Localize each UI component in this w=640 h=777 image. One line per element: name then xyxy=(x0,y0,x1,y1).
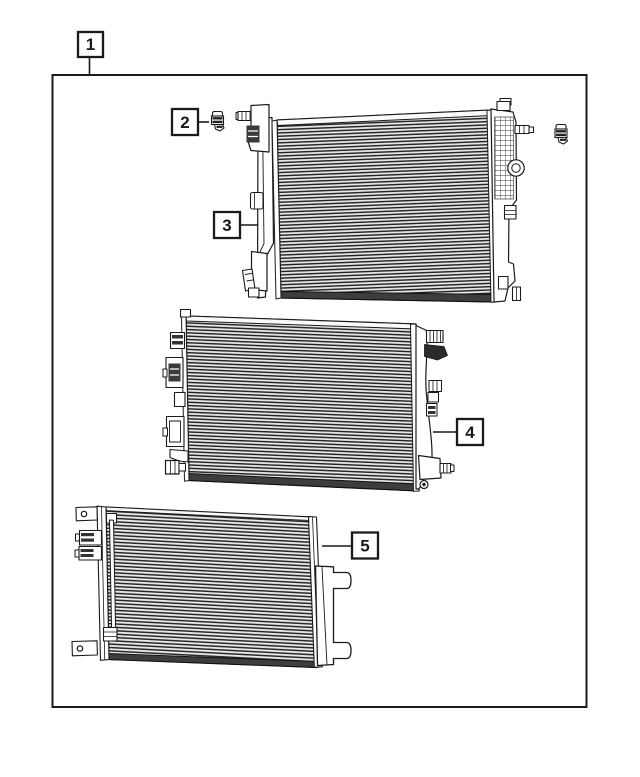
callout-1: 1 xyxy=(78,32,103,75)
callout-4-number: 4 xyxy=(465,423,475,442)
callout-4: 4 xyxy=(433,419,483,445)
radiator-upper-bottomleft-bracket xyxy=(243,252,268,298)
callout-3: 3 xyxy=(214,212,259,238)
radiator-lower-top-cap xyxy=(181,310,191,318)
retainer-clip-left xyxy=(212,112,225,132)
radiator-upper-topleft-bracket xyxy=(236,105,269,153)
callout-5-number: 5 xyxy=(360,536,369,555)
condenser-core xyxy=(106,507,317,668)
condenser-side-bracket xyxy=(316,566,352,666)
radiator-lower-right-tank xyxy=(416,326,454,490)
radiator-upper-core xyxy=(277,110,495,302)
callout-2: 2 xyxy=(172,109,209,135)
radiator-lower-drawing xyxy=(163,310,454,492)
radiator-upper-left-tab xyxy=(251,193,264,210)
diagram-canvas: 1 2 xyxy=(0,0,640,777)
radiator-lower-core xyxy=(186,316,419,491)
radiator-upper-right-tank xyxy=(491,99,534,303)
parts-diagram: 1 2 xyxy=(0,0,640,777)
callout-2-number: 2 xyxy=(180,113,189,132)
condenser-drawing xyxy=(72,506,351,667)
callout-1-number: 1 xyxy=(86,35,95,54)
callout-5: 5 xyxy=(322,533,378,559)
radiator-upper-drawing xyxy=(236,99,534,303)
callout-3-number: 3 xyxy=(222,216,231,235)
retainer-clip-right xyxy=(555,125,568,145)
